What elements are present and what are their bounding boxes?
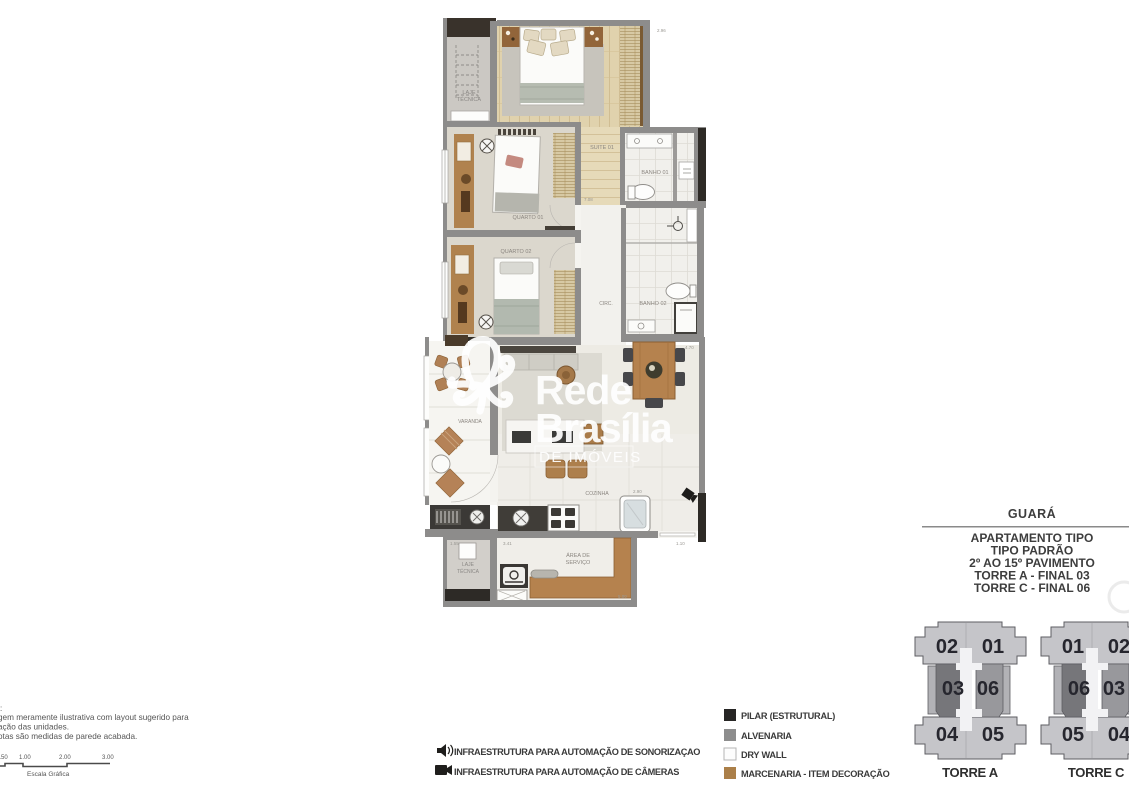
- svg-text:QUARTO 01: QUARTO 01: [513, 215, 544, 221]
- svg-text:VARANDA: VARANDA: [458, 419, 482, 425]
- svg-text:0.50: 0.50: [0, 755, 8, 761]
- svg-text:04: 04: [1108, 724, 1129, 746]
- svg-text:TÉCNICA: TÉCNICA: [457, 96, 481, 103]
- svg-text:LAJE: LAJE: [462, 562, 475, 568]
- svg-text:LAJE: LAJE: [462, 90, 475, 96]
- svg-text:3.00: 3.00: [102, 755, 114, 761]
- svg-text:1.00: 1.00: [19, 755, 31, 761]
- svg-text:04: 04: [936, 724, 959, 746]
- svg-text:DE IMÓVEIS: DE IMÓVEIS: [539, 449, 642, 466]
- svg-text:02: 02: [936, 636, 958, 658]
- svg-text:3.41: 3.41: [503, 541, 512, 546]
- svg-text:01: 01: [982, 636, 1004, 658]
- svg-text:INFRAESTRUTURA PARA AUTOMAÇÃO: INFRAESTRUTURA PARA AUTOMAÇÃO DE CÂMERAS: [454, 766, 679, 777]
- svg-text:7.08: 7.08: [584, 197, 593, 202]
- svg-text:1.10: 1.10: [676, 541, 685, 546]
- svg-text:05: 05: [1062, 724, 1084, 746]
- svg-text:5.00: 5.00: [618, 594, 627, 599]
- svg-text:06: 06: [1068, 678, 1090, 700]
- svg-text:TORRE C: TORRE C: [1068, 765, 1125, 780]
- svg-text:2.00: 2.00: [59, 755, 71, 761]
- svg-text:otas são medidas de parede aca: otas são medidas de parede acabada.: [0, 732, 137, 741]
- svg-text:GUARÁ: GUARÁ: [1008, 506, 1056, 521]
- svg-text:2.90: 2.90: [633, 489, 642, 494]
- svg-text:TÉCNICA: TÉCNICA: [457, 568, 480, 575]
- svg-text:INFRAESTRUTURA PARA AUTOMAÇÃO: INFRAESTRUTURA PARA AUTOMAÇÃO DE SONORIZ…: [454, 747, 700, 757]
- svg-text:4.70: 4.70: [685, 345, 694, 350]
- svg-text:MARCENARIA - ITEM DECORAÇÃO: MARCENARIA - ITEM DECORAÇÃO: [741, 769, 890, 779]
- svg-text:BANHO 01: BANHO 01: [641, 170, 668, 176]
- svg-text:01: 01: [1062, 636, 1084, 658]
- svg-text:TORRE A: TORRE A: [942, 765, 999, 780]
- svg-text:1.55: 1.55: [450, 541, 459, 546]
- svg-text:SUITE 01: SUITE 01: [590, 145, 614, 151]
- svg-text:BANHO 02: BANHO 02: [639, 301, 666, 307]
- svg-text:06: 06: [977, 678, 999, 700]
- svg-text:03: 03: [1103, 678, 1125, 700]
- svg-text:gem meramente ilustrativa com: gem meramente ilustrativa com layout sug…: [0, 713, 189, 722]
- svg-text:TORRE C - FINAL 06: TORRE C - FINAL 06: [974, 581, 1091, 595]
- svg-text:Brasília: Brasília: [535, 405, 674, 451]
- svg-text:02: 02: [1108, 636, 1129, 658]
- svg-text::: :: [0, 704, 2, 713]
- svg-text:ação das unidades.: ação das unidades.: [0, 723, 69, 732]
- svg-text:DRY WALL: DRY WALL: [741, 750, 787, 760]
- svg-text:ALVENARIA: ALVENARIA: [741, 731, 792, 741]
- svg-text:COZINHA: COZINHA: [585, 491, 609, 497]
- svg-text:QUARTO 02: QUARTO 02: [501, 249, 532, 255]
- svg-text:CIRC.: CIRC.: [599, 301, 613, 307]
- svg-text:2.96: 2.96: [657, 28, 666, 33]
- svg-text:PILAR (ESTRUTURAL): PILAR (ESTRUTURAL): [741, 711, 835, 721]
- svg-text:ÁREA DE: ÁREA DE: [566, 552, 590, 559]
- svg-text:03: 03: [942, 678, 964, 700]
- svg-text:SERVIÇO: SERVIÇO: [566, 560, 591, 566]
- svg-text:Escala Gráfica: Escala Gráfica: [27, 771, 70, 778]
- svg-text:05: 05: [982, 724, 1004, 746]
